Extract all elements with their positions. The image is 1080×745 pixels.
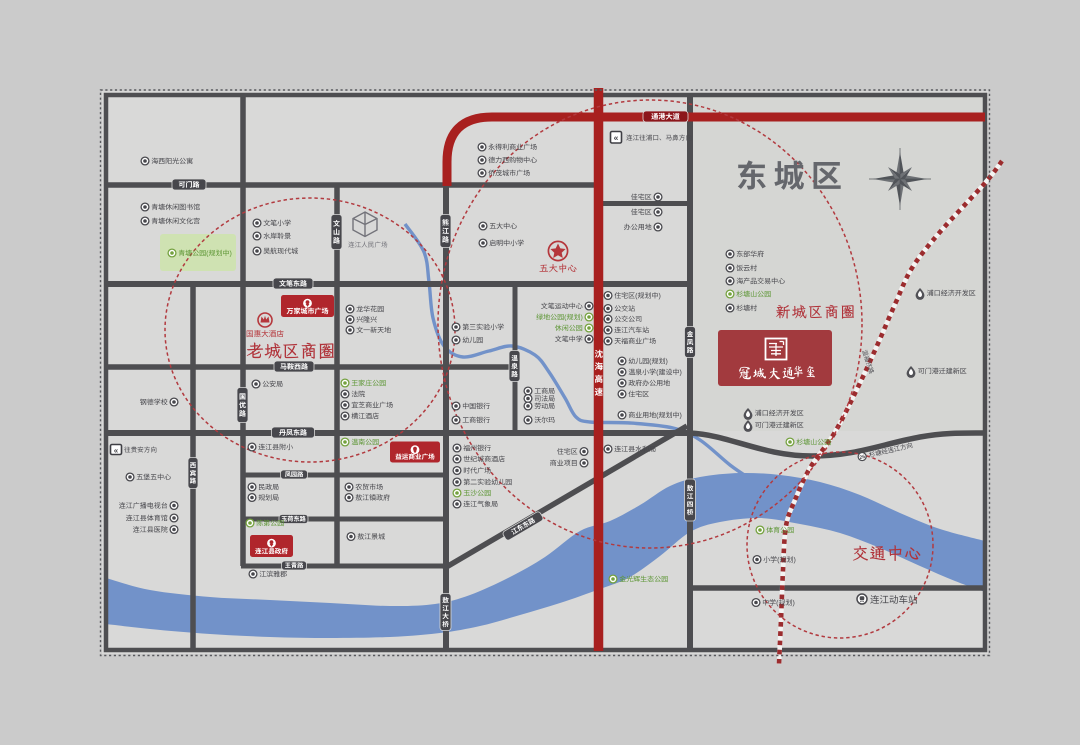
svg-text:青塘公园(规划中): 青塘公园(规划中) (178, 249, 232, 259)
svg-text:小学(规划): 小学(规划) (763, 555, 796, 565)
svg-text:永得利商业广场: 永得利商业广场 (488, 143, 537, 153)
svg-text:连江县政府: 连江县政府 (255, 546, 288, 556)
svg-text:丹凤东路: 丹凤东路 (279, 428, 307, 438)
svg-text:连江动车站: 连江动车站 (870, 592, 918, 606)
svg-text:可门港迁建新区: 可门港迁建新区 (918, 367, 967, 377)
svg-text:温南公园: 温南公园 (351, 438, 379, 448)
svg-text:杉塘村: 杉塘村 (736, 304, 757, 314)
svg-text:沈: 沈 (594, 348, 603, 360)
svg-text:老城区商圈: 老城区商圈 (246, 339, 336, 362)
svg-text:杉塘山公园: 杉塘山公园 (796, 438, 831, 448)
svg-text:路: 路 (442, 235, 449, 245)
svg-text:佳宅区: 佳宅区 (631, 193, 652, 203)
svg-text:浦口经济开发区: 浦口经济开发区 (927, 289, 976, 299)
svg-text:兴隆兴: 兴隆兴 (356, 315, 377, 325)
svg-text:五堡五中心: 五堡五中心 (136, 473, 171, 483)
svg-text:公交公司: 公交公司 (614, 315, 642, 325)
svg-text:东部华府: 东部华府 (736, 250, 764, 260)
svg-text:海产品交易中心: 海产品交易中心 (736, 277, 785, 287)
svg-text:连江汽车站: 连江汽车站 (614, 326, 649, 336)
svg-text:华玺: 华玺 (792, 365, 817, 378)
svg-text:«: « (614, 132, 619, 144)
svg-text:连江县水利局: 连江县水利局 (614, 445, 656, 455)
svg-text:马鞍西路: 马鞍西路 (280, 362, 308, 372)
svg-text:杉塘山公园: 杉塘山公园 (736, 290, 771, 300)
svg-text:劳动局: 劳动局 (534, 402, 555, 412)
svg-text:连江县附小: 连江县附小 (258, 443, 293, 453)
svg-text:交通中心: 交通中心 (852, 542, 922, 564)
svg-text:中国银行: 中国银行 (462, 402, 490, 412)
svg-text:敖江景城: 敖江景城 (357, 532, 385, 542)
svg-text:天福商业广场: 天福商业广场 (614, 337, 656, 347)
svg-text:住宅区(规划中): 住宅区(规划中) (614, 291, 661, 301)
svg-text:益运商业广场: 益运商业广场 (395, 451, 435, 461)
svg-text:启明中小学: 启明中小学 (489, 239, 524, 249)
svg-text:连江县医院: 连江县医院 (133, 525, 168, 535)
svg-text:文一新天地: 文一新天地 (356, 326, 391, 336)
svg-text:速: 速 (594, 386, 603, 398)
svg-text:王家庄公园: 王家庄公园 (351, 379, 386, 389)
svg-text:住宅区: 住宅区 (557, 447, 578, 457)
svg-text:连江往浦口、马鼻方向: 连江往浦口、马鼻方向 (626, 132, 692, 142)
svg-text:民政局: 民政局 (258, 483, 279, 493)
svg-text:幼儿园: 幼儿园 (462, 336, 483, 346)
svg-text:高: 高 (594, 373, 603, 385)
svg-text:路: 路 (190, 476, 197, 485)
svg-text:浦口经济开发区: 浦口经济开发区 (755, 409, 804, 419)
svg-text:路: 路 (511, 368, 518, 378)
svg-text:凤园路: 凤园路 (285, 470, 304, 479)
svg-text:第三实验小学: 第三实验小学 (462, 323, 504, 333)
svg-text:吴航现代城: 吴航现代城 (263, 247, 298, 257)
svg-text:规划局: 规划局 (258, 493, 279, 503)
svg-text:桥: 桥 (687, 506, 694, 516)
svg-text:住宅区: 住宅区 (628, 390, 649, 400)
svg-text:连江气象局: 连江气象局 (463, 500, 498, 510)
svg-text:工商银行: 工商银行 (462, 416, 490, 426)
svg-text:桥: 桥 (442, 618, 449, 628)
svg-text:体育公园: 体育公园 (766, 526, 794, 536)
svg-text:德力西购物中心: 德力西购物中心 (488, 156, 537, 166)
svg-text:商业项目: 商业项目 (550, 459, 578, 469)
svg-text:休闲公园: 休闲公园 (555, 324, 583, 334)
svg-text:饭云村: 饭云村 (736, 264, 757, 274)
svg-text:世纪城商酒店: 世纪城商酒店 (463, 455, 505, 465)
svg-text:可门港迁建新区: 可门港迁建新区 (755, 421, 804, 431)
svg-text:商业用地(规划中): 商业用地(规划中) (628, 411, 682, 421)
svg-text:东城区: 东城区 (736, 151, 849, 196)
svg-text:五大中心: 五大中心 (489, 222, 517, 232)
svg-text:温泉小学(建设中): 温泉小学(建设中) (628, 368, 682, 378)
svg-text:王青路: 王青路 (285, 561, 304, 570)
svg-text:政府办公用地: 政府办公用地 (628, 379, 670, 389)
svg-text:文笔运动中心: 文笔运动中心 (541, 302, 583, 312)
svg-text:福州银行: 福州银行 (463, 444, 491, 454)
svg-text:文笔小学: 文笔小学 (263, 219, 291, 229)
svg-text:水岸聆景: 水岸聆景 (263, 232, 291, 242)
svg-text:文笔东路: 文笔东路 (279, 279, 307, 289)
svg-text:横江酒店: 横江酒店 (351, 412, 379, 422)
svg-text:路: 路 (239, 409, 246, 419)
svg-text:海: 海 (594, 361, 603, 373)
svg-text:«: « (114, 445, 119, 456)
svg-text:中学(规划): 中学(规划) (762, 598, 795, 608)
svg-text:通港大道: 通港大道 (651, 112, 680, 122)
svg-text:幼儿园(规划): 幼儿园(规划) (628, 357, 668, 367)
svg-text:路: 路 (687, 344, 694, 354)
svg-text:五大中心: 五大中心 (539, 262, 578, 275)
svg-text:侨茂城市广场: 侨茂城市广场 (488, 169, 530, 179)
svg-text:第二实验幼儿园: 第二实验幼儿园 (463, 478, 512, 488)
svg-text:时代广场: 时代广场 (463, 466, 491, 476)
svg-text:钢德学校: 钢德学校 (140, 398, 168, 408)
svg-text:办公用地: 办公用地 (624, 223, 652, 233)
svg-text:可门路: 可门路 (179, 180, 200, 190)
svg-text:海西阳光公寓: 海西阳光公寓 (151, 157, 193, 167)
svg-text:玉荷东路: 玉荷东路 (281, 514, 307, 523)
svg-text:往贵安方向: 往贵安方向 (124, 444, 157, 454)
svg-text:国惠大酒店: 国惠大酒店 (246, 329, 284, 340)
svg-text:公交站: 公交站 (614, 304, 635, 314)
svg-text:青塘休闲图书馆: 青塘休闲图书馆 (151, 203, 200, 213)
svg-text:金光辉生态公园: 金光辉生态公园 (619, 575, 668, 585)
svg-text:法院: 法院 (351, 390, 365, 400)
svg-text:路: 路 (333, 236, 340, 246)
svg-text:玉沙公园: 玉沙公园 (463, 489, 491, 499)
svg-text:文笔中学: 文笔中学 (555, 335, 583, 345)
svg-text:沃尔玛: 沃尔玛 (534, 416, 555, 426)
svg-text:公安局: 公安局 (262, 380, 283, 390)
svg-text:江滨雅郡: 江滨雅郡 (259, 570, 287, 580)
svg-text:龙华花园: 龙华花园 (356, 305, 384, 315)
svg-text:青塘休闲文化宫: 青塘休闲文化宫 (151, 217, 200, 227)
svg-text:陈第公园: 陈第公园 (256, 519, 284, 529)
svg-text:敖江镇政府: 敖江镇政府 (355, 493, 390, 503)
svg-text:万家城市广场: 万家城市广场 (287, 307, 329, 317)
svg-text:连江广播电视台: 连江广播电视台 (119, 501, 168, 511)
svg-text:佳宅区: 佳宅区 (631, 208, 652, 218)
svg-text:连江人民广场: 连江人民广场 (348, 239, 388, 249)
svg-text:冠城大通: 冠城大通 (738, 366, 796, 380)
svg-text:连江县体育馆: 连江县体育馆 (126, 514, 168, 524)
svg-text:新城区商圈: 新城区商圈 (775, 303, 856, 322)
svg-text:宜芝商业广场: 宜芝商业广场 (351, 401, 393, 411)
svg-text:农贸市场: 农贸市场 (355, 483, 383, 493)
svg-text:绿地公园(规划): 绿地公园(规划) (536, 313, 583, 323)
